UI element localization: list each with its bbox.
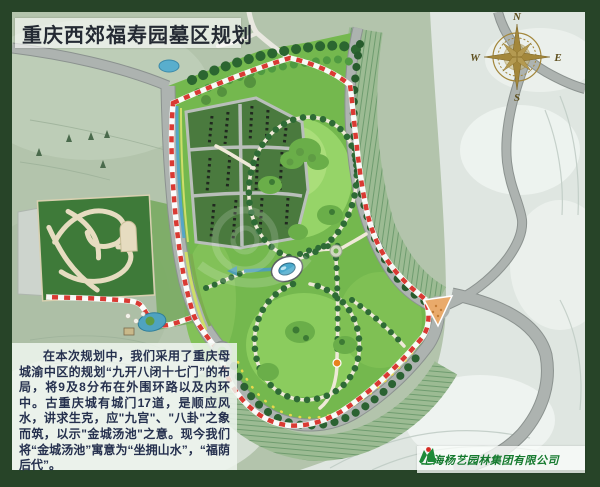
company-logo-icon: [417, 446, 439, 466]
orange-node: [333, 359, 341, 367]
keyhole-feature: [120, 221, 138, 252]
path-node: [330, 245, 342, 257]
compass-label-e: E: [553, 52, 561, 64]
description-text: 在本次规划中，我们采用了重庆母城渝中区的规划“九开八闭十七门”的布局，将9及8分…: [19, 349, 230, 474]
planning-poster: N E S W 重庆西郊福寿园墓区规划 在本次规划中，我们采用了重庆母城渝中区的…: [0, 0, 600, 487]
company-name: 上海杨艺园林集团有限公司: [421, 452, 559, 468]
compass-label-s: S: [514, 92, 520, 104]
description-panel: 在本次规划中，我们采用了重庆母城渝中区的规划“九开八闭十七门”的布局，将9及8分…: [12, 343, 237, 470]
garden-parcel: [37, 195, 154, 301]
page-title: 重庆西郊福寿园墓区规划: [22, 19, 253, 48]
compass-label-w: W: [470, 52, 481, 64]
title-band: 重庆西郊福寿园墓区规划: [15, 18, 241, 48]
compass-label-n: N: [512, 11, 522, 23]
company-band: 上海杨艺园林集团有限公司: [417, 446, 585, 473]
